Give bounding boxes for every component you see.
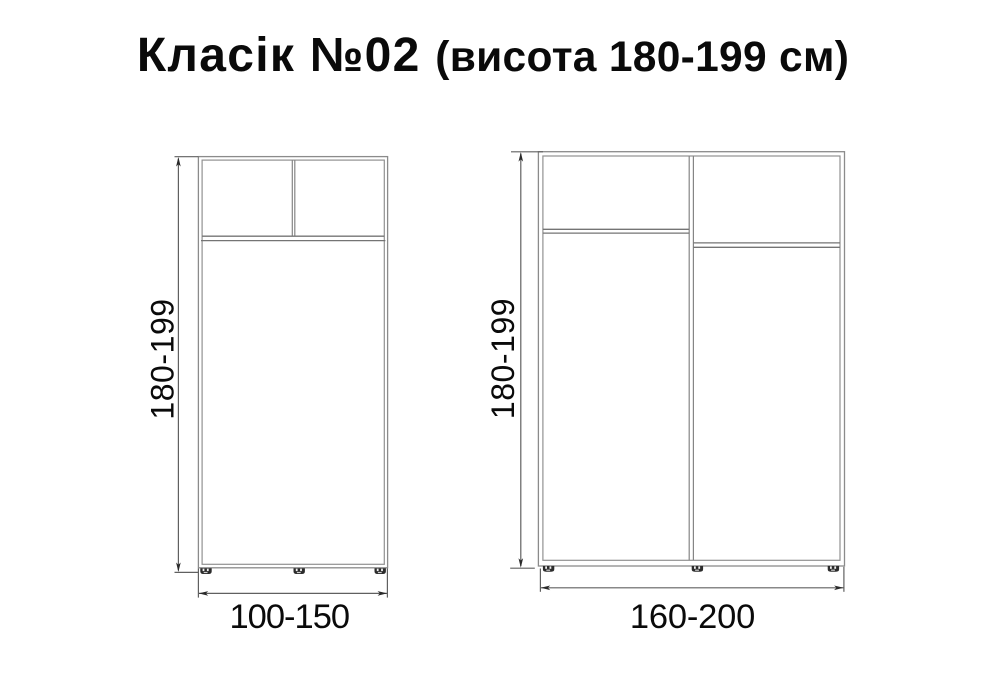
svg-text:180-199: 180-199 xyxy=(485,298,521,419)
svg-text:100-150: 100-150 xyxy=(229,598,349,636)
svg-text:180-199: 180-199 xyxy=(145,298,181,419)
svg-text:Класік №02 (висота 180-199 см): Класік №02 (висота 180-199 см) xyxy=(137,29,849,82)
svg-text:160-200: 160-200 xyxy=(630,598,755,636)
